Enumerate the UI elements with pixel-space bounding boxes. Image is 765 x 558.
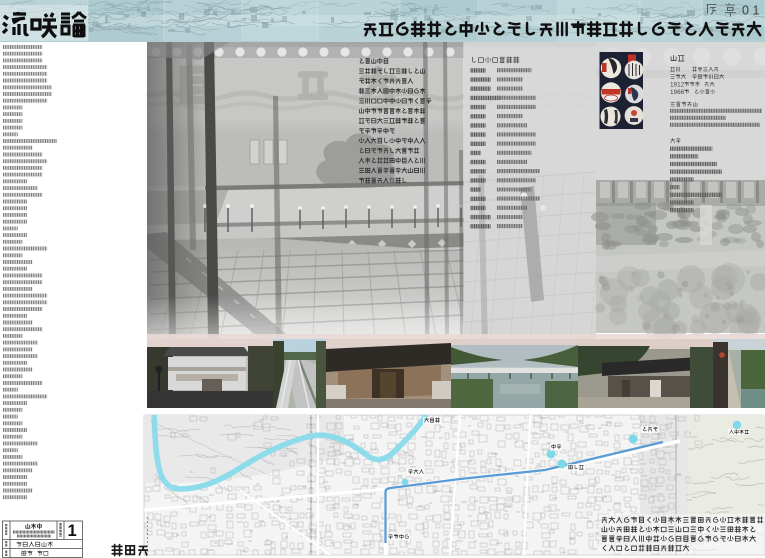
svg-text:1966: 1966 [670,89,685,96]
svg-text:1912: 1912 [670,82,685,89]
svg-text:01: 01 [742,4,763,18]
svg-text:1: 1 [68,522,77,540]
